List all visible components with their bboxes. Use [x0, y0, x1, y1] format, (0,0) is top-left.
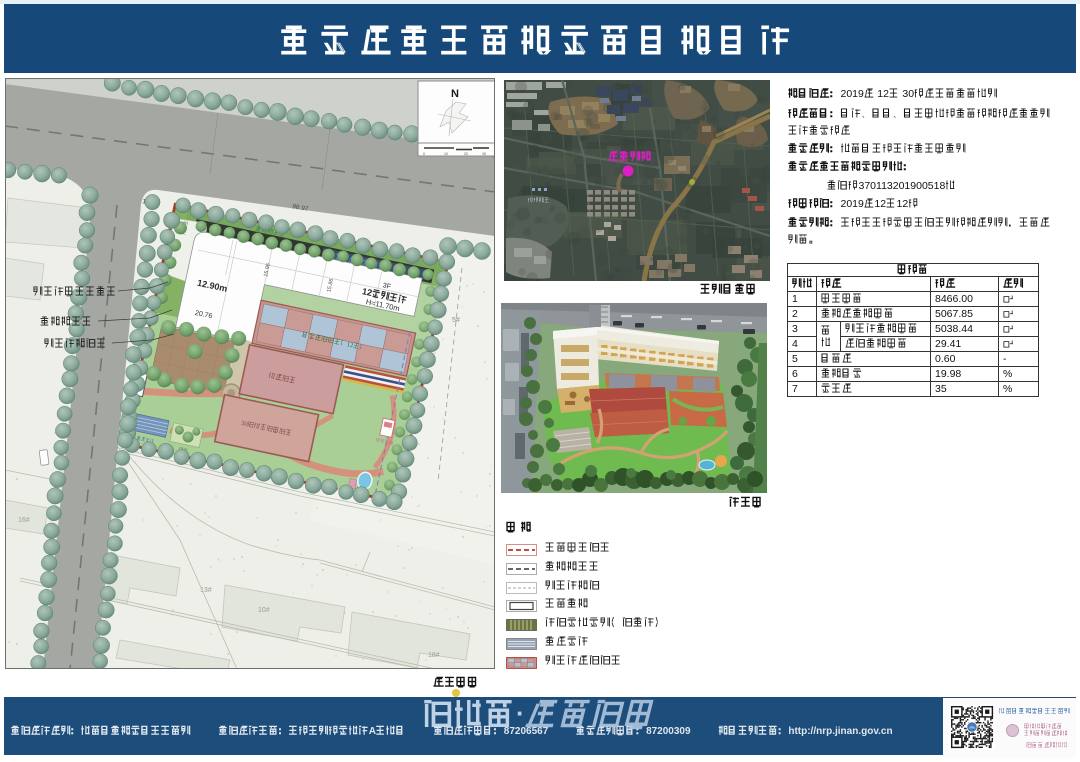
svg-text:13#: 13#: [200, 587, 212, 594]
svg-text:18#: 18#: [428, 652, 440, 659]
svg-text:10: 10: [444, 152, 448, 156]
svg-text:幼儿园用地范围线: 幼儿园用地范围线: [33, 287, 117, 297]
svg-text:0: 0: [423, 152, 425, 156]
svg-text:N: N: [451, 88, 459, 100]
svg-text:16#: 16#: [18, 517, 30, 524]
svg-text:20: 20: [464, 152, 468, 156]
svg-text:建筑控制线: 建筑控制线: [40, 317, 93, 327]
svg-text:村安置区: 村安置区: [528, 197, 550, 203]
svg-text:拟建位置: 拟建位置: [608, 150, 652, 162]
svg-text:10#: 10#: [258, 607, 270, 614]
svg-text:幼儿园院墙线: 幼儿园院墙线: [44, 339, 107, 349]
svg-text:40: 40: [482, 152, 486, 156]
